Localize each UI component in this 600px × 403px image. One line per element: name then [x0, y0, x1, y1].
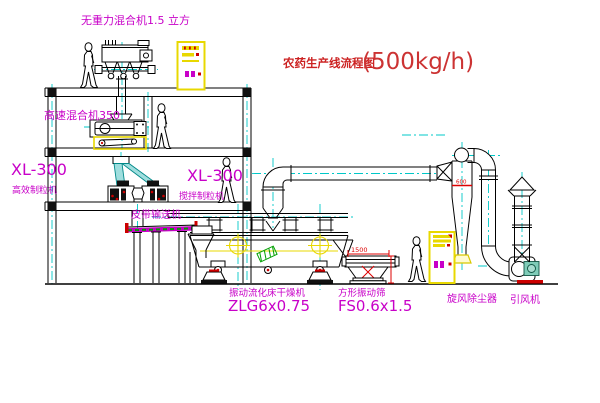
label-gravity-mixer: 无重力混合机1.5 立方	[81, 13, 190, 27]
label-high-speed-mixer: 高速混合机350	[44, 108, 120, 122]
label-xl300-left: XL-300	[11, 160, 67, 179]
control-cabinet-1	[178, 42, 205, 90]
drawing-canvas: 无重力混合机1.5 立方 农药生产线流程图 (500kg/h) 高速混合机350…	[0, 0, 600, 403]
dryer-feed-box	[192, 226, 212, 234]
label-xl300-center: XL-300	[187, 166, 243, 185]
label-fan: 引风机	[510, 293, 540, 306]
fan-base	[517, 280, 543, 284]
high-speed-mixer	[90, 97, 146, 150]
label-sieve-model: FS0.6x1.5	[338, 297, 412, 315]
dim-cyclone: 600	[456, 180, 467, 186]
page-title-capacity: (500kg/h)	[362, 49, 474, 75]
dim-sieve-width: 1500	[351, 246, 368, 254]
exhaust-duct	[261, 165, 437, 231]
dryer-top-ports	[207, 218, 334, 232]
control-cabinet-2	[430, 232, 455, 283]
cad-flow-diagram: 无重力混合机1.5 立方 农药生产线流程图 (500kg/h) 高速混合机350…	[0, 0, 600, 403]
person-4	[409, 237, 426, 282]
dryer-nameplate	[257, 246, 277, 262]
label-dryer-model: ZLG6x0.75	[228, 297, 310, 315]
person-2	[154, 104, 171, 149]
belt-conveyor	[125, 221, 198, 283]
label-granulator-center: 搅拌制粒机	[179, 190, 224, 202]
induced-draft-fan	[482, 245, 544, 284]
label-belt-conveyor: 皮带输送机	[131, 208, 181, 221]
label-cyclone: 旋风除尘器	[447, 292, 497, 305]
label-granulator-left: 高效制粒机	[12, 184, 57, 196]
dryer-center-marks	[226, 234, 332, 258]
